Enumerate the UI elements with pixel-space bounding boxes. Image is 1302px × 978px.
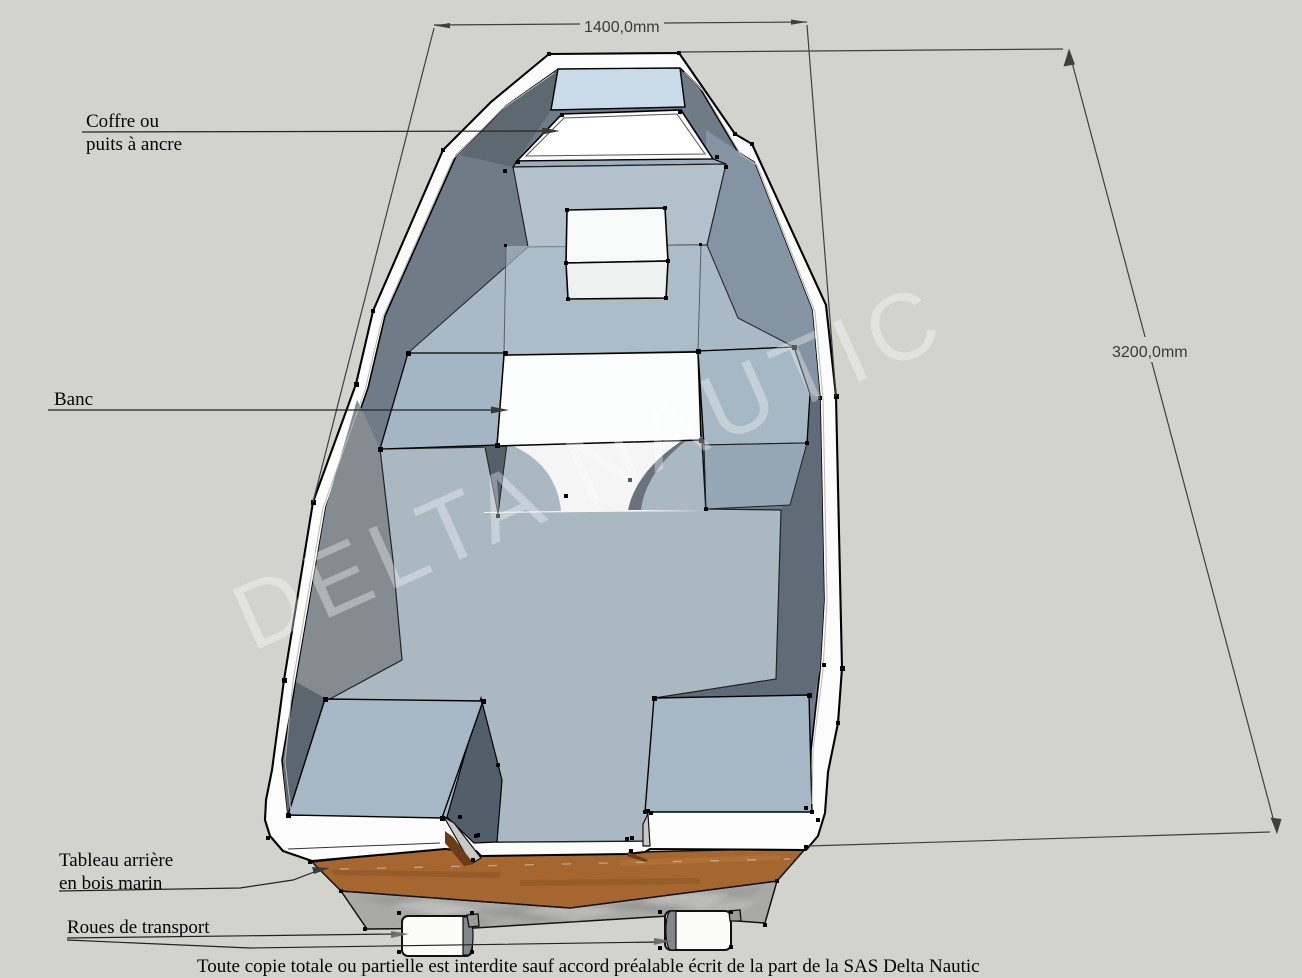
svg-text:Tableau arrière: Tableau arrière (59, 850, 173, 871)
svg-text:Toute copie totale ou partiell: Toute copie totale ou partielle est inte… (197, 956, 980, 977)
svg-text:puits à ancre: puits à ancre (86, 134, 182, 155)
svg-text:Coffre ou: Coffre ou (86, 111, 159, 132)
svg-text:3200,0mm: 3200,0mm (1112, 344, 1188, 361)
svg-text:Roues de transport: Roues de transport (67, 917, 210, 938)
svg-text:Banc: Banc (54, 389, 93, 410)
svg-text:1400,0mm: 1400,0mm (584, 19, 660, 36)
